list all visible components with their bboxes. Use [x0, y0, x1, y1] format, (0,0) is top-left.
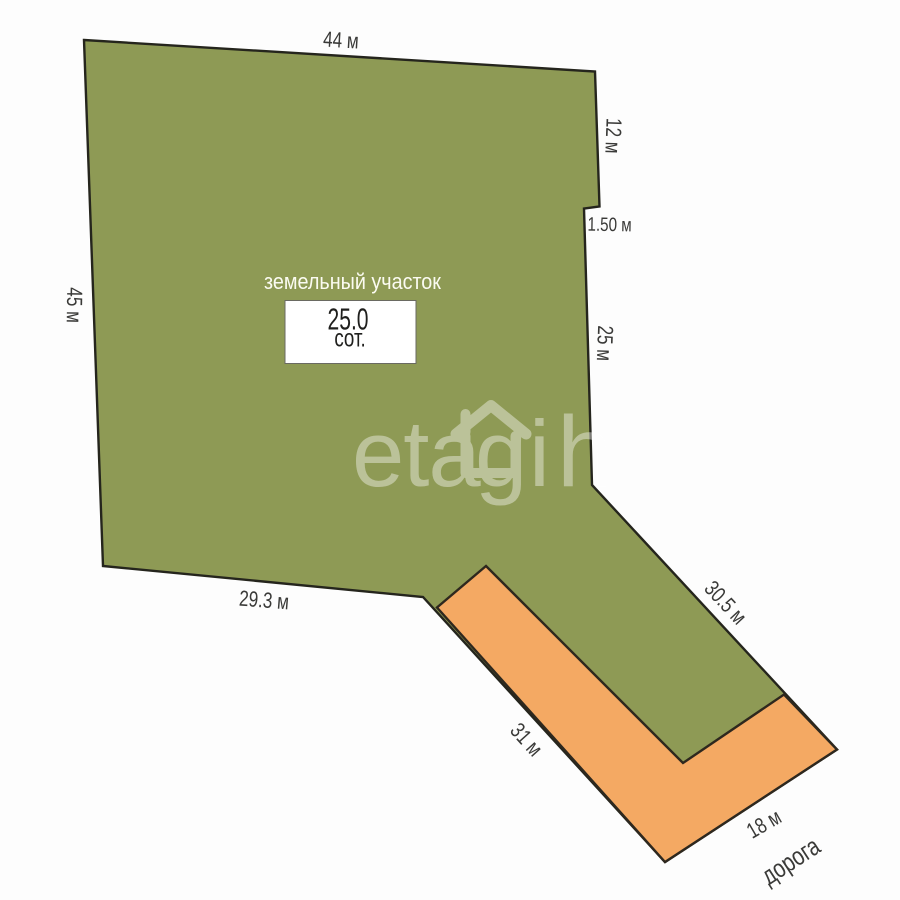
svg-text:h: h [557, 396, 613, 508]
svg-text:25 м: 25 м [591, 325, 617, 361]
svg-text:29.3 м: 29.3 м [238, 587, 290, 615]
svg-text:сот.: сот. [334, 324, 365, 352]
svg-text:земельный участок: земельный участок [264, 270, 442, 294]
svg-text:44 м: 44 м [322, 27, 359, 54]
svg-text:45 м: 45 м [61, 287, 86, 323]
svg-text:1.50 м: 1.50 м [587, 213, 632, 236]
svg-text:12 м: 12 м [600, 117, 626, 153]
svg-text:i: i [529, 401, 550, 506]
svg-text:дорога: дорога [756, 831, 825, 890]
svg-text:18 м: 18 м [743, 805, 786, 844]
